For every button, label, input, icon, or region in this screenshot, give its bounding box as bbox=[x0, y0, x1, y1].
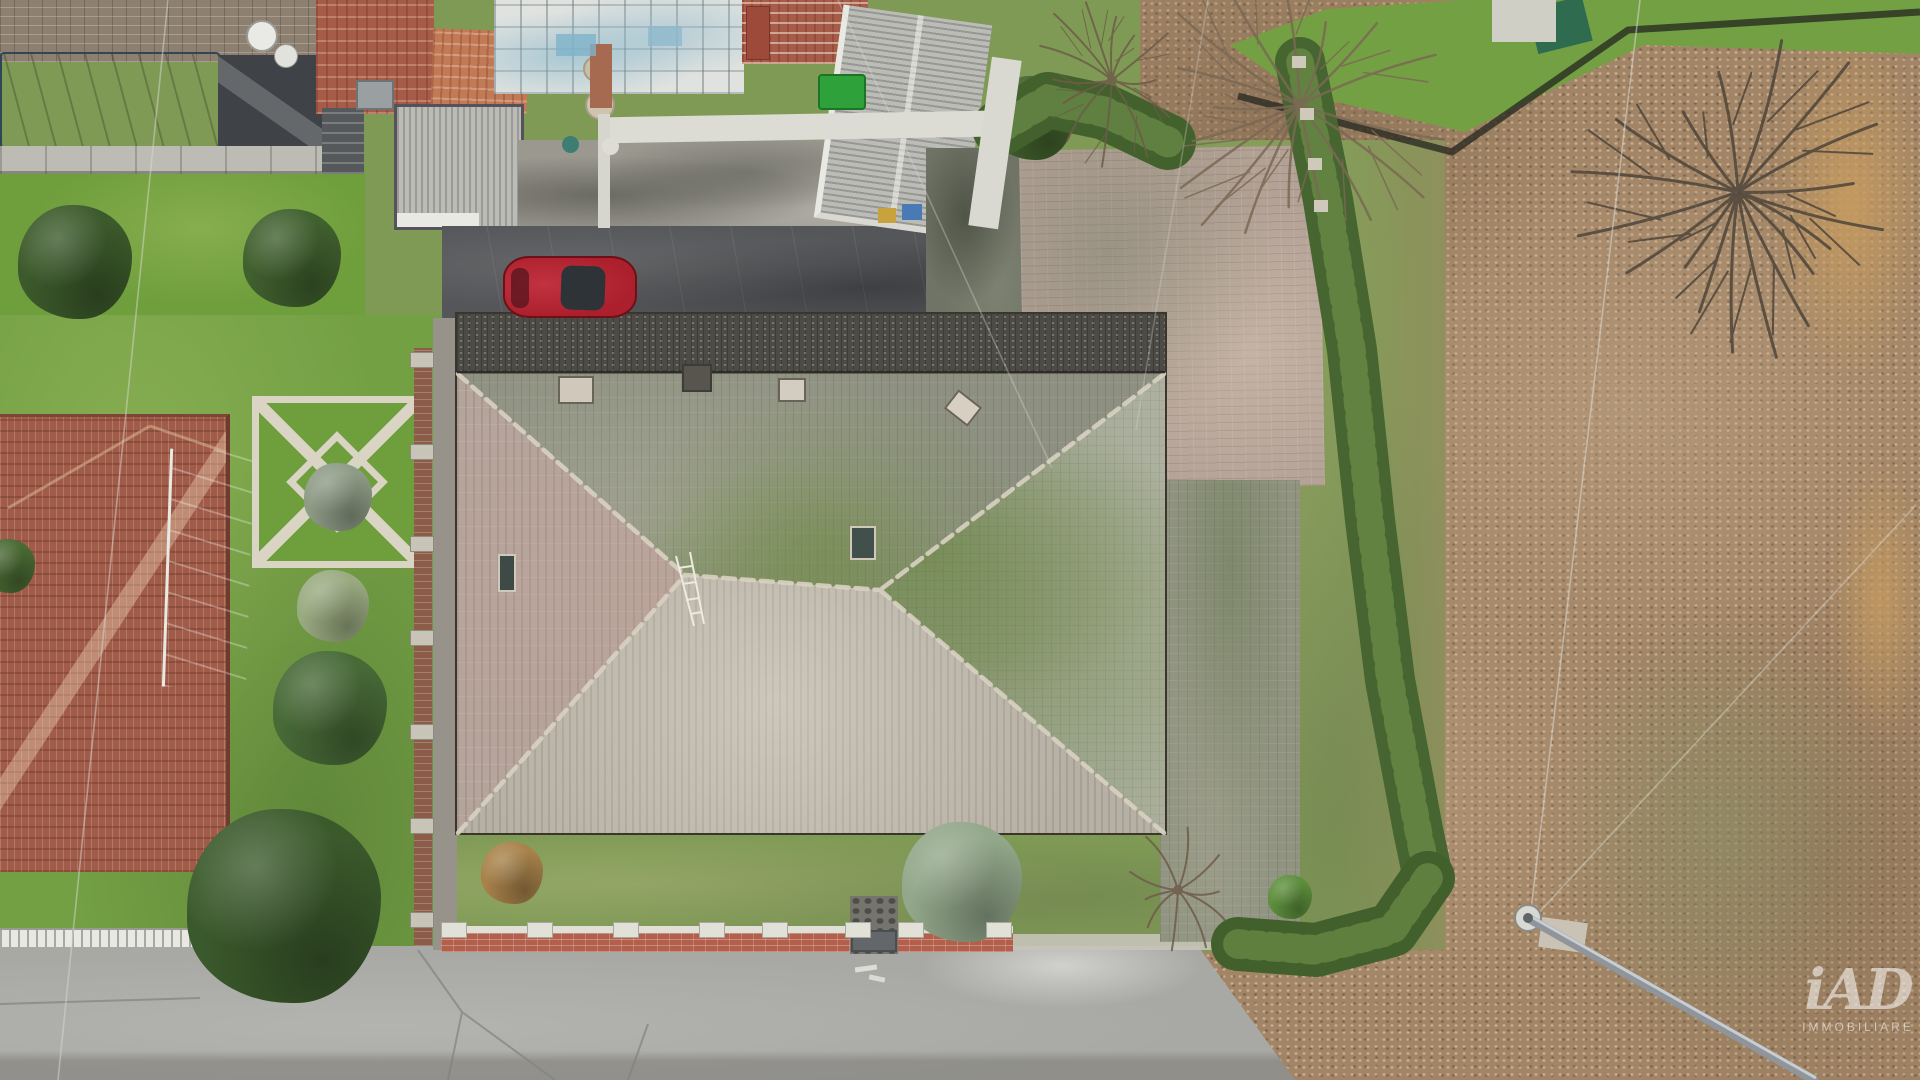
pole-layer bbox=[0, 0, 1920, 1080]
tv-antenna bbox=[676, 552, 704, 626]
aerial-photo: iAD IMMOBILIARE bbox=[0, 0, 1920, 1080]
watermark-subtitle: IMMOBILIARE bbox=[1790, 1020, 1920, 1034]
watermark: iAD IMMOBILIARE bbox=[1790, 962, 1920, 1034]
pole-cap bbox=[1523, 913, 1533, 923]
pole-highlight bbox=[1530, 916, 1816, 1078]
watermark-logo: iAD bbox=[1790, 962, 1920, 1018]
utility-pole bbox=[1515, 905, 1816, 1080]
pole-shaft bbox=[1528, 918, 1814, 1080]
